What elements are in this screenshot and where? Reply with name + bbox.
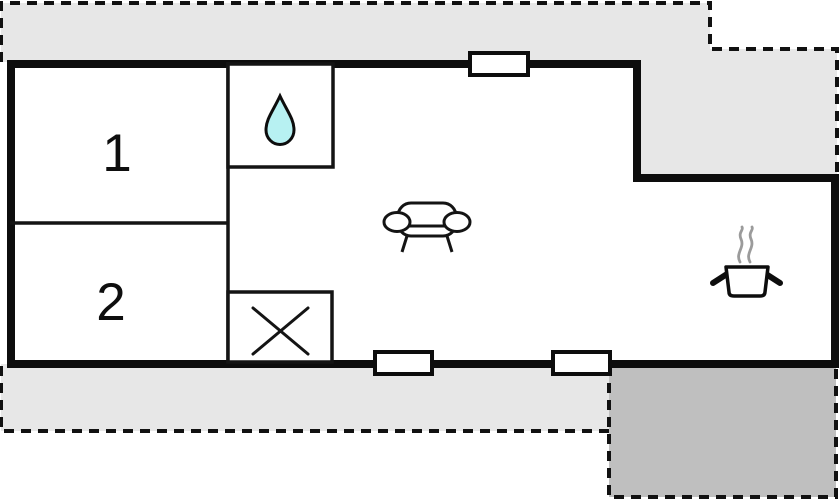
bottom-wall-window-left — [375, 352, 432, 374]
bottom-wall-window-right — [553, 352, 610, 374]
utility-room-walls — [228, 292, 332, 362]
bedroom-2-label: 2 — [96, 273, 125, 332]
floor-plan: 1 2 — [0, 0, 839, 500]
top-wall-window — [470, 53, 528, 75]
patio-dark — [609, 364, 836, 497]
terrace-bottom — [1, 364, 609, 431]
bedroom-1-label: 1 — [102, 124, 131, 183]
floor-plan-svg: 1 2 — [0, 0, 839, 500]
